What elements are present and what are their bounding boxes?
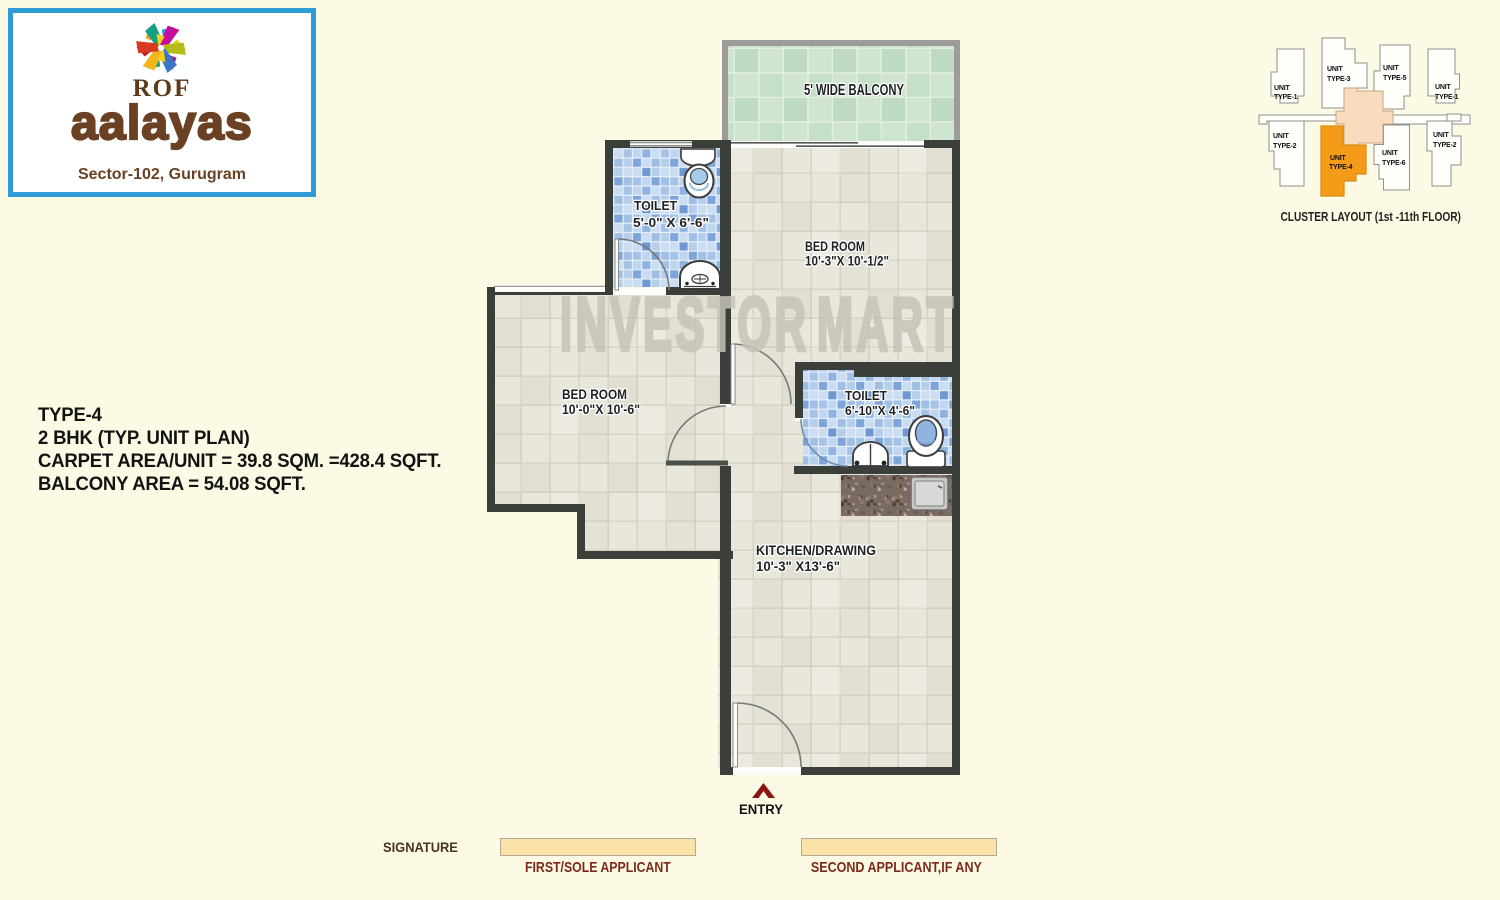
svg-text:TOILET: TOILET bbox=[634, 198, 677, 213]
svg-text:10'-0"X 10'-6": 10'-0"X 10'-6" bbox=[562, 401, 640, 417]
svg-text:10'-3" X13'-6": 10'-3" X13'-6" bbox=[756, 558, 840, 574]
svg-text:UNIT: UNIT bbox=[1382, 150, 1398, 157]
svg-text:UNIT: UNIT bbox=[1433, 132, 1449, 139]
svg-text:TYPE-3: TYPE-3 bbox=[1327, 76, 1351, 83]
svg-text:UNIT: UNIT bbox=[1274, 85, 1290, 92]
svg-text:BED ROOM: BED ROOM bbox=[562, 386, 627, 402]
svg-text:TYPE-2: TYPE-2 bbox=[1433, 142, 1457, 149]
svg-text:6'-10"X 4'-6": 6'-10"X 4'-6" bbox=[845, 403, 915, 418]
svg-text:5' WIDE BALCONY: 5' WIDE BALCONY bbox=[804, 82, 904, 99]
svg-text:TYPE-1: TYPE-1 bbox=[1274, 94, 1298, 101]
svg-text:TYPE-6: TYPE-6 bbox=[1382, 160, 1406, 167]
svg-text:ENTRY: ENTRY bbox=[739, 802, 783, 817]
svg-text:KITCHEN/DRAWING: KITCHEN/DRAWING bbox=[756, 542, 876, 558]
svg-text:UNIT: UNIT bbox=[1383, 65, 1399, 72]
svg-text:UNIT: UNIT bbox=[1273, 133, 1289, 140]
svg-text:UNIT: UNIT bbox=[1330, 155, 1346, 162]
svg-text:TYPE-5: TYPE-5 bbox=[1383, 75, 1407, 82]
svg-text:TYPE-4: TYPE-4 bbox=[1329, 164, 1353, 171]
svg-text:UNIT: UNIT bbox=[1435, 84, 1451, 91]
svg-text:TOILET: TOILET bbox=[845, 388, 887, 403]
svg-text:TYPE-2: TYPE-2 bbox=[1273, 143, 1297, 150]
svg-text:TYPE-1: TYPE-1 bbox=[1435, 94, 1459, 101]
svg-text:5'-0" X 6'-6": 5'-0" X 6'-6" bbox=[633, 215, 709, 230]
svg-text:UNIT: UNIT bbox=[1327, 66, 1343, 73]
svg-text:10'-3"X 10'-1/2": 10'-3"X 10'-1/2" bbox=[805, 253, 889, 269]
